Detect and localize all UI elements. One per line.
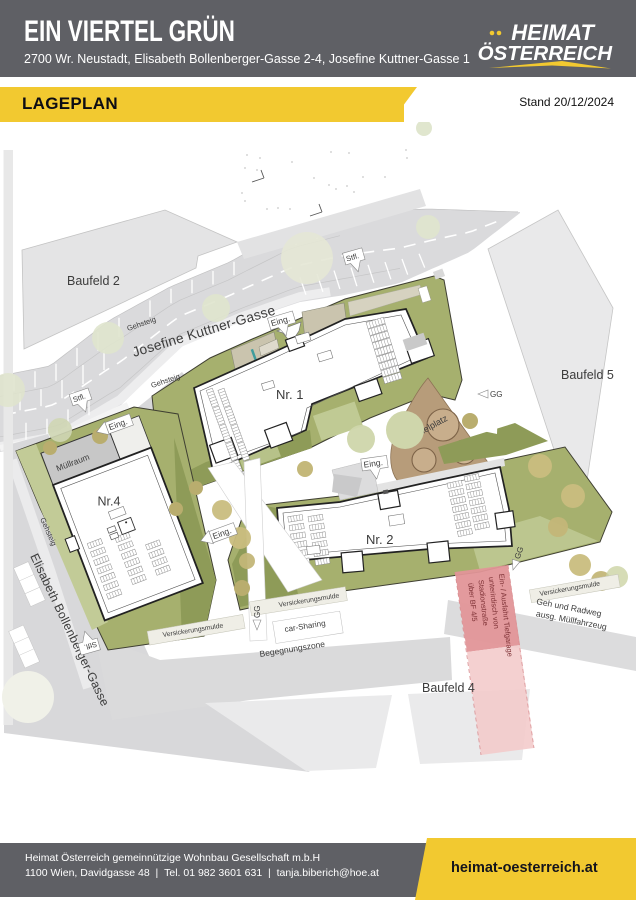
svg-text:Nr. 2: Nr. 2 — [366, 532, 393, 547]
svg-text:Nr. 1: Nr. 1 — [276, 387, 303, 402]
svg-text:Baufeld 4: Baufeld 4 — [422, 681, 475, 695]
svg-text:Baufeld 5: Baufeld 5 — [561, 368, 614, 382]
svg-text:Nr.4: Nr.4 — [98, 495, 121, 509]
svg-text:Baufeld 2: Baufeld 2 — [67, 274, 120, 288]
svg-text:GG: GG — [253, 606, 262, 618]
svg-text:GG: GG — [490, 390, 502, 399]
svg-text:ÖSTERREICH: ÖSTERREICH — [478, 42, 614, 65]
